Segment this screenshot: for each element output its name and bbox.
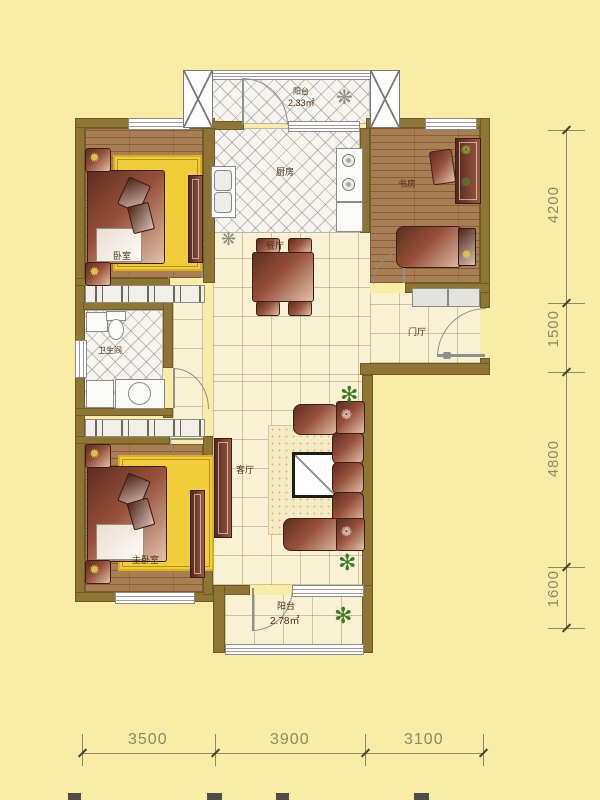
wall-foyer-bottom [360, 363, 490, 375]
wall-balcony-bottom-left [213, 585, 225, 653]
living-tv-cabinet [214, 438, 232, 538]
bathroom-window [75, 340, 87, 378]
dim-bottom-value-2: 3900 [270, 731, 310, 749]
wall-right-upper [480, 118, 490, 308]
bathroom-washer [86, 312, 108, 332]
sofa-cushion-1 [332, 432, 364, 464]
master-bedroom-label: 主卧室 [132, 556, 159, 566]
master-wardrobe [85, 419, 205, 437]
flower-icon: ❁ [461, 144, 471, 156]
balcony-top-railing [210, 70, 372, 80]
snowflake-icon: ❋ [336, 88, 353, 108]
bedroom-label: 卧室 [113, 252, 131, 262]
armchair-top [293, 404, 339, 435]
wall-living-bottom-left [223, 585, 250, 595]
kitchen-balcony-slider [288, 121, 360, 132]
wall-bathroom-bottom [75, 408, 173, 416]
plant-icon: ✻ [334, 605, 352, 627]
wall-bathroom-right-upper [163, 302, 173, 368]
foyer-shoe-cabinet-1 [412, 288, 448, 307]
dim-right-value-1: 4200 [545, 186, 562, 223]
sofa-bottom [283, 518, 343, 551]
dim-right-value-3: 4800 [545, 440, 562, 477]
foyer-label: 门厅 [408, 328, 426, 338]
stove-burner-1 [342, 154, 355, 167]
plant-icon: ✻ [338, 552, 356, 574]
foyer-shoe-cabinet-2 [448, 288, 480, 307]
dim-right-line [566, 130, 567, 628]
vanity-basin [128, 382, 151, 405]
lamp-icon: ✹ [461, 248, 472, 261]
cropped-caption-mark [414, 793, 429, 800]
lamp-icon: ✹ [89, 563, 100, 576]
balcony-pillar-left [183, 70, 213, 128]
cropped-caption-mark [276, 793, 289, 800]
floor-plan: ✹ ✹ 卧室 厨房 ❁ ❁ ✹ 书房 ❋ 餐厅 门厅 卫生间 ✹ ✹ 主卧室 [0, 0, 600, 800]
dining-chair-4 [288, 301, 312, 316]
corridor-floor [173, 286, 203, 436]
living-balcony-slider [292, 585, 364, 597]
dim-right-value-4: 1600 [545, 570, 562, 607]
kitchen-balcony-door-leaf [242, 78, 244, 124]
bedroom-side-cabinet [188, 175, 203, 263]
toilet-bowl [108, 319, 124, 340]
dim-bottom-value-3: 3100 [404, 731, 444, 749]
dim-bottom-value-1: 3500 [128, 731, 168, 749]
master-door-leaf [170, 438, 203, 440]
shower-tray [86, 380, 114, 408]
balcony-top-area: 2.33㎡ [288, 99, 315, 109]
balcony-bottom-label: 阳台 [277, 602, 295, 612]
bedroom-wardrobe [85, 285, 205, 303]
balcony-pillar-right [370, 70, 400, 128]
dim-right-value-2: 1500 [545, 310, 562, 347]
study-window [425, 118, 477, 130]
dining-table [252, 252, 314, 302]
living-balcony-door-leaf [252, 588, 254, 630]
flower-icon: ❁ [341, 408, 352, 421]
lamp-icon: ✹ [89, 151, 100, 164]
cropped-caption-mark [207, 793, 222, 800]
flower-icon: ❁ [461, 176, 471, 188]
lamp-icon: ✹ [89, 447, 100, 460]
bathroom-label: 卫生间 [98, 347, 122, 356]
dining-chair-2 [288, 238, 312, 253]
cropped-caption-mark [68, 793, 81, 800]
kitchen-sink-basin-2 [214, 192, 232, 213]
master-tv-cabinet [190, 490, 205, 578]
dim-bottom-line [82, 753, 483, 754]
master-window [115, 592, 195, 604]
bedroom-window [128, 118, 190, 130]
sofa-cushion-2 [332, 462, 364, 494]
snowflake-icon: ❋ [221, 230, 236, 248]
balcony-top-label: 阳台 [293, 88, 309, 97]
bathroom-door-arc [173, 368, 209, 409]
kitchen-sink-basin-1 [214, 170, 232, 191]
wall-master-top [75, 436, 170, 444]
living-label: 客厅 [236, 466, 254, 476]
kitchen-label: 厨房 [276, 168, 294, 178]
lamp-icon: ✹ [89, 265, 100, 278]
study-chair [429, 149, 457, 186]
dining-label: 餐厅 [266, 242, 284, 252]
wall-kitchen-sill-left [210, 121, 244, 130]
flower-icon: ❁ [341, 525, 352, 538]
study-bed [396, 226, 464, 268]
entrance-door-knob [443, 352, 451, 359]
balcony-bottom-area: 2.78㎡ [270, 616, 299, 627]
dining-chair-3 [256, 301, 280, 316]
study-label: 书房 [398, 180, 416, 190]
balcony-bottom-railing [225, 644, 364, 655]
stove-burner-2 [342, 178, 355, 191]
kitchen-counter [336, 202, 363, 232]
bathroom-door-leaf [173, 368, 175, 408]
plant-icon: ✻ [340, 384, 358, 406]
wall-bathroom-top [83, 302, 173, 310]
